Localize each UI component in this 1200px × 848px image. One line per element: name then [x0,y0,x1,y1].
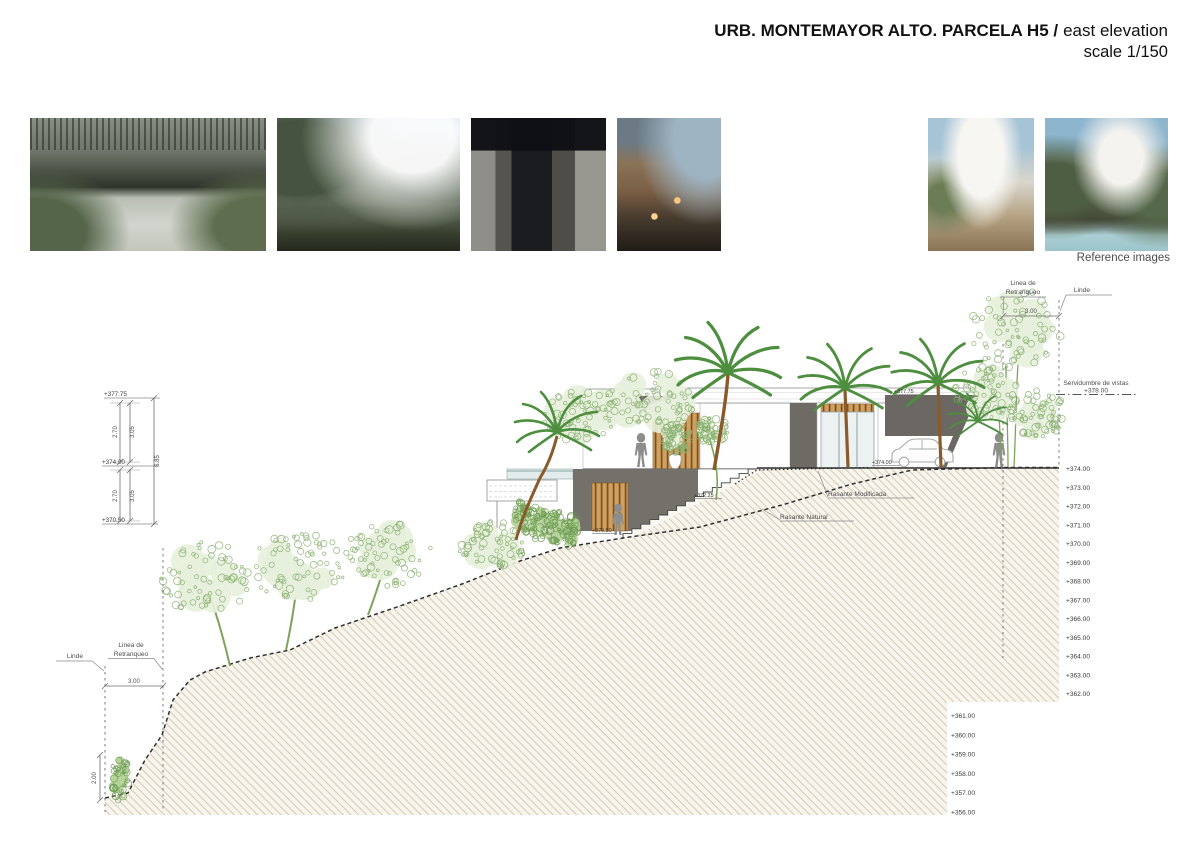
level-label-top: +377.75 [104,391,127,398]
scribble-tree-canopy [159,541,251,613]
drawing-sheet: URB. MONTEMAYOR ALTO. PARCELA H5 /east e… [0,0,1200,848]
elevation-tick: +359.00 [951,752,975,759]
elevation-tick: +373.00 [1066,485,1090,492]
elevation-tick: +367.00 [1066,597,1090,604]
scribble-tree-canopy [344,520,432,588]
elevation-tick: +369.00 [1066,560,1090,567]
elevation-tick: +374.00 [1066,466,1090,473]
elevation-box [947,702,1063,823]
elevation-tick: +358.00 [951,771,975,778]
roof-level: +377.75 [894,389,914,395]
setback-dimension-bottom: 3.00 [128,679,140,685]
setback-label-bottom-line2: Retranqueo [114,651,149,658]
setback-label-line1: Linea de [1010,280,1036,287]
scribble-tree-canopy [254,532,344,601]
scribble-tree-canopy [606,368,695,433]
elevation-tick: +360.00 [951,732,975,739]
cantilever-planter [487,480,557,501]
elevation-tick: +368.00 [1066,579,1090,586]
elevation-tick: +371.00 [1066,522,1090,529]
left-dimension-stack: +377.75 +374.00 +370.50 2.70 3.05 2.70 3… [102,391,161,527]
setback-label-bottom-line1: Linea de [118,642,144,649]
modified-grade-label: Rasante Modificada [828,491,887,498]
elevation-tick: +363.00 [1066,672,1090,679]
natural-grade-label: Rasante Natural [780,514,828,521]
elevation-tick: +362.00 [1066,691,1090,698]
person-silhouette [993,433,1006,467]
scribble-tree-canopy [970,289,1064,371]
entry-level: +374.00 [872,460,892,466]
elevation-tick: +364.00 [1066,654,1090,661]
dark-wall-strip [790,403,817,468]
dim-lower-a: 2.70 [113,490,119,502]
elevation-tick: +365.00 [1066,635,1090,642]
elevation-tick: +370.00 [1066,541,1090,548]
landing-level: +372.25 [694,493,714,499]
setback-label-line2: Retranqueo [1006,289,1041,296]
dim-upper-a: 2.70 [113,426,119,438]
elevation-tick: +361.00 [951,713,975,720]
lower-level: +370.50 [592,528,612,534]
view-easement-level: +378.00 [1084,388,1108,395]
level-label-low: +370.50 [102,517,125,524]
dim-upper-b: 3.05 [130,426,136,438]
east-elevation-drawing: +374.00+373.00+372.00+371.00+370.00+369.… [0,0,1200,848]
view-easement-label: Servidumbre de vistas [1063,380,1129,387]
elevation-tick: +357.00 [951,790,975,797]
dim-lower-b: 3.05 [130,490,136,502]
elevation-tick: +356.00 [951,810,975,817]
boundary-label: Linde [1074,287,1090,294]
car-outline [892,439,953,467]
tree-height-dimension: 2.00 [92,772,98,784]
elevation-tick: +366.00 [1066,616,1090,623]
timber-transom [821,404,874,412]
elevation-tick: +372.00 [1066,504,1090,511]
dim-total: 6.85 [155,455,161,467]
setback-dimension: 3.00 [1025,309,1037,315]
elevation-scale-right: +374.00+373.00+372.00+371.00+370.00+369.… [1066,466,1090,698]
boundary-label-bottom: Linde [67,653,83,660]
